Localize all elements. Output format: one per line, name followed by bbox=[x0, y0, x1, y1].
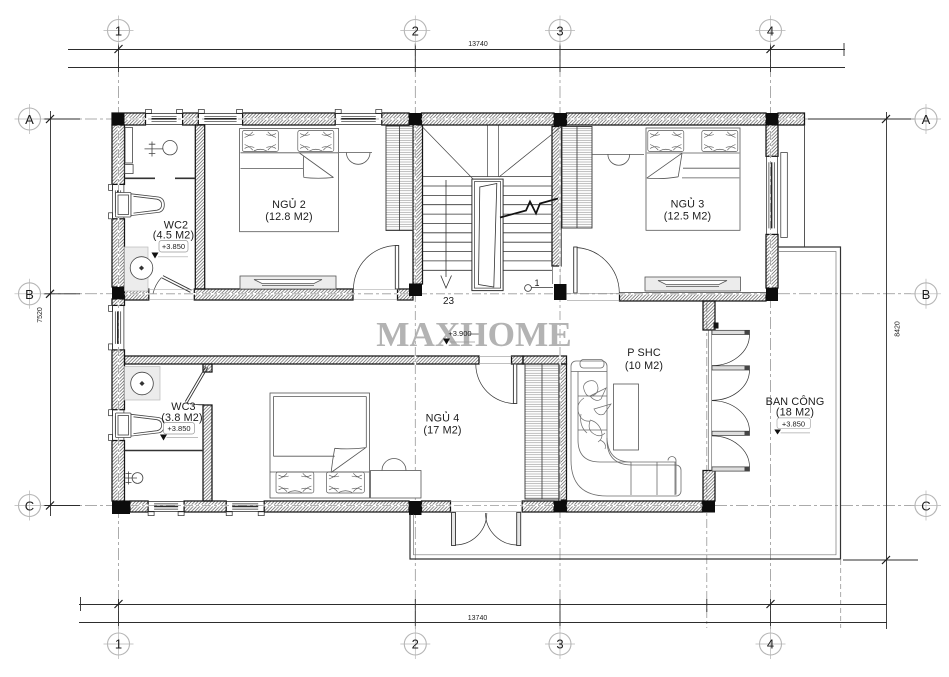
svg-text:23: 23 bbox=[443, 296, 455, 307]
svg-text:(12.5 M2): (12.5 M2) bbox=[664, 211, 712, 223]
svg-text:+3.850: +3.850 bbox=[782, 419, 805, 428]
svg-text:1: 1 bbox=[534, 278, 539, 288]
svg-text:(4.5 M2): (4.5 M2) bbox=[153, 230, 194, 242]
svg-text:3: 3 bbox=[556, 637, 563, 652]
svg-text:+3.850: +3.850 bbox=[162, 242, 185, 251]
svg-text:NGỦ 2: NGỦ 2 bbox=[272, 198, 306, 211]
svg-text:C: C bbox=[921, 499, 930, 514]
svg-text:MAXHOME: MAXHOME bbox=[376, 315, 571, 354]
svg-text:13740: 13740 bbox=[468, 615, 488, 622]
svg-text:P SHC: P SHC bbox=[627, 347, 661, 359]
svg-text:7520: 7520 bbox=[37, 307, 44, 323]
svg-text:+3.900: +3.900 bbox=[448, 329, 471, 338]
svg-text:NGỦ 3: NGỦ 3 bbox=[671, 198, 705, 211]
svg-text:(10 M2): (10 M2) bbox=[625, 360, 663, 372]
svg-text:(18 M2): (18 M2) bbox=[776, 406, 814, 418]
svg-text:B: B bbox=[25, 287, 34, 302]
svg-text:C: C bbox=[25, 499, 34, 514]
svg-text:4: 4 bbox=[767, 24, 774, 39]
svg-text:B: B bbox=[922, 287, 931, 302]
svg-text:13740: 13740 bbox=[468, 41, 488, 48]
svg-text:1: 1 bbox=[115, 637, 122, 652]
svg-text:A: A bbox=[25, 112, 34, 127]
svg-text:2: 2 bbox=[412, 637, 419, 652]
svg-text:NGỦ 4: NGỦ 4 bbox=[426, 412, 460, 425]
svg-text:3: 3 bbox=[556, 24, 563, 39]
svg-text:(17 M2): (17 M2) bbox=[423, 425, 461, 437]
svg-text:A: A bbox=[922, 112, 931, 127]
svg-text:2: 2 bbox=[412, 24, 419, 39]
svg-text:8420: 8420 bbox=[895, 321, 902, 337]
svg-text:4: 4 bbox=[767, 637, 774, 652]
svg-text:+3.850: +3.850 bbox=[167, 424, 190, 433]
svg-text:1: 1 bbox=[115, 24, 122, 39]
svg-text:(12.8 M2): (12.8 M2) bbox=[265, 211, 313, 223]
